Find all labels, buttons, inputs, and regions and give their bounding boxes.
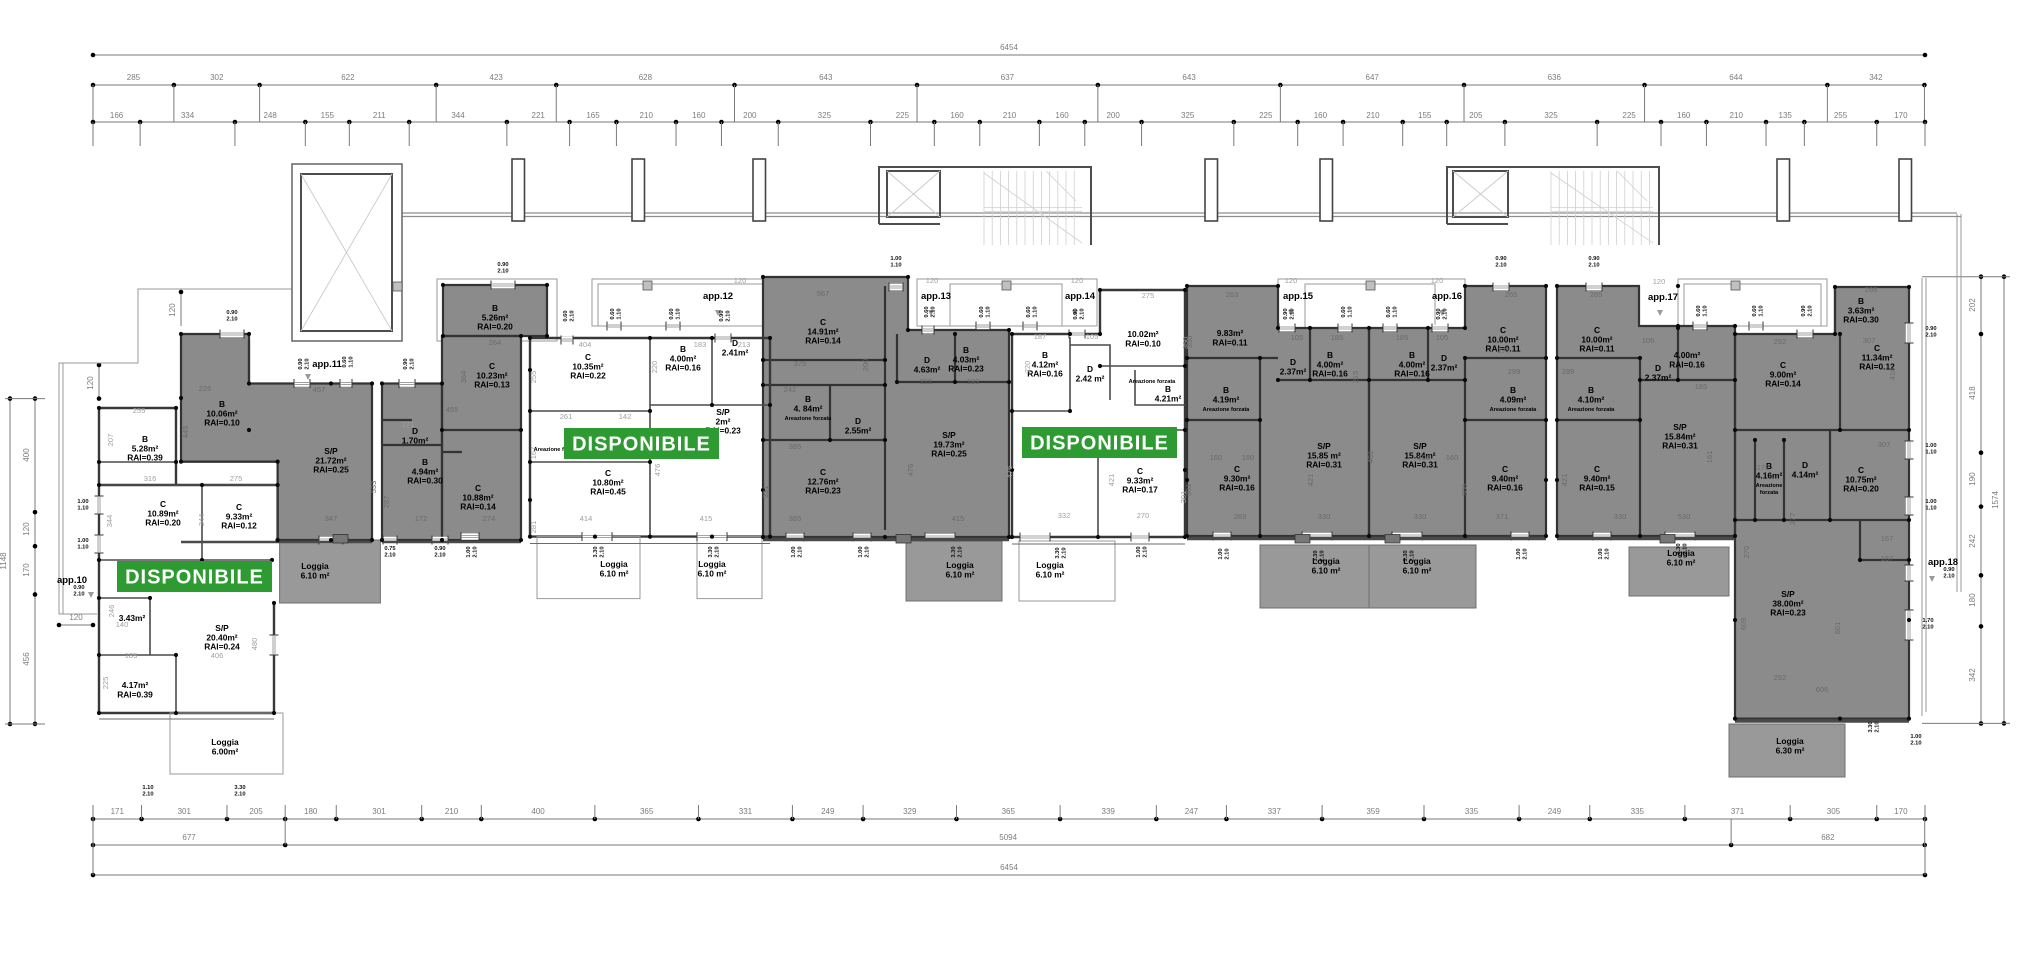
svg-text:2.10: 2.10 bbox=[1319, 550, 1325, 561]
svg-text:2.10: 2.10 bbox=[1289, 308, 1295, 319]
svg-text:170: 170 bbox=[22, 563, 31, 577]
svg-text:0.90: 0.90 bbox=[1495, 256, 1506, 262]
svg-text:1.10: 1.10 bbox=[1392, 306, 1398, 317]
svg-text:0.90: 0.90 bbox=[298, 358, 304, 369]
svg-text:160: 160 bbox=[950, 111, 964, 120]
svg-text:371: 371 bbox=[1731, 807, 1745, 816]
svg-text:1.70m²: 1.70m² bbox=[402, 435, 429, 445]
svg-text:RAI=0.25: RAI=0.25 bbox=[931, 449, 967, 459]
svg-text:247: 247 bbox=[1185, 807, 1199, 816]
svg-text:2.10: 2.10 bbox=[1522, 548, 1528, 559]
svg-text:2.10: 2.10 bbox=[1142, 546, 1148, 557]
svg-text:220: 220 bbox=[650, 361, 659, 374]
svg-text:2.10: 2.10 bbox=[1874, 721, 1880, 732]
svg-text:606: 606 bbox=[1816, 685, 1829, 694]
svg-text:RAI=0.45: RAI=0.45 bbox=[590, 487, 626, 497]
svg-text:210: 210 bbox=[1730, 111, 1744, 120]
svg-text:RAI=0.16: RAI=0.16 bbox=[1312, 369, 1348, 379]
svg-text:2.42 m²: 2.42 m² bbox=[1076, 373, 1105, 383]
svg-text:2.10: 2.10 bbox=[1682, 543, 1688, 554]
svg-text:248: 248 bbox=[263, 111, 277, 120]
svg-text:0.60: 0.60 bbox=[1026, 306, 1032, 317]
svg-text:207: 207 bbox=[106, 434, 115, 447]
svg-text:210: 210 bbox=[640, 111, 654, 120]
svg-text:225: 225 bbox=[1622, 111, 1636, 120]
svg-text:app.11: app.11 bbox=[312, 359, 342, 370]
svg-text:2.10: 2.10 bbox=[226, 316, 237, 322]
svg-text:6.00m²: 6.00m² bbox=[212, 746, 239, 756]
svg-text:0.60: 0.60 bbox=[669, 308, 675, 319]
svg-text:476: 476 bbox=[1005, 466, 1014, 479]
svg-text:0.60: 0.60 bbox=[1341, 306, 1347, 317]
svg-text:RAI=0.11: RAI=0.11 bbox=[1579, 344, 1614, 354]
svg-text:180: 180 bbox=[304, 807, 318, 816]
svg-text:4.09m²: 4.09m² bbox=[1500, 394, 1527, 404]
svg-text:app.12: app.12 bbox=[703, 291, 733, 302]
svg-text:170: 170 bbox=[1894, 111, 1908, 120]
svg-text:1.00: 1.00 bbox=[466, 546, 472, 557]
svg-text:202: 202 bbox=[1968, 298, 1977, 312]
svg-text:643: 643 bbox=[1182, 73, 1196, 82]
svg-text:166: 166 bbox=[110, 111, 124, 120]
svg-text:RAI=0.23: RAI=0.23 bbox=[948, 364, 984, 374]
svg-text:105: 105 bbox=[1436, 333, 1449, 342]
svg-text:3.30: 3.30 bbox=[951, 546, 957, 557]
svg-text:2.10: 2.10 bbox=[234, 791, 245, 797]
svg-text:334: 334 bbox=[181, 111, 195, 120]
svg-text:287: 287 bbox=[382, 496, 391, 509]
svg-text:2.10: 2.10 bbox=[1925, 332, 1936, 338]
svg-text:292: 292 bbox=[1774, 673, 1787, 682]
svg-text:415: 415 bbox=[700, 514, 713, 523]
svg-text:292: 292 bbox=[1774, 337, 1787, 346]
svg-text:530: 530 bbox=[1678, 512, 1691, 521]
svg-text:RAI=0.39: RAI=0.39 bbox=[127, 453, 163, 463]
svg-text:0.90: 0.90 bbox=[497, 262, 508, 268]
svg-text:200: 200 bbox=[861, 359, 870, 372]
svg-text:6.30 m²: 6.30 m² bbox=[1776, 745, 1805, 755]
svg-text:3.30: 3.30 bbox=[1403, 550, 1409, 561]
svg-text:app.13: app.13 bbox=[921, 291, 951, 302]
svg-text:1.10: 1.10 bbox=[890, 262, 901, 268]
svg-text:185: 185 bbox=[1695, 382, 1708, 391]
svg-text:120: 120 bbox=[734, 276, 747, 285]
svg-text:RAI=0.14: RAI=0.14 bbox=[1765, 379, 1801, 389]
svg-text:2.10: 2.10 bbox=[434, 552, 445, 558]
svg-text:0.60: 0.60 bbox=[342, 356, 348, 367]
svg-text:RAI=0.14: RAI=0.14 bbox=[805, 336, 841, 346]
svg-text:1.10: 1.10 bbox=[1032, 306, 1038, 317]
svg-text:Areazione: Areazione bbox=[1756, 483, 1783, 489]
svg-text:2.10: 2.10 bbox=[1943, 573, 1954, 579]
svg-text:172: 172 bbox=[1757, 463, 1770, 472]
svg-text:0.90: 0.90 bbox=[1925, 326, 1936, 332]
svg-text:RAI=0.22: RAI=0.22 bbox=[570, 371, 606, 381]
svg-text:414: 414 bbox=[580, 514, 593, 523]
svg-text:RAI=0.31: RAI=0.31 bbox=[1306, 460, 1342, 470]
svg-text:6.10 m²: 6.10 m² bbox=[600, 568, 629, 578]
svg-text:Areazione forzata: Areazione forzata bbox=[1568, 407, 1616, 413]
svg-text:1.00: 1.00 bbox=[1598, 548, 1604, 559]
svg-text:281: 281 bbox=[529, 521, 538, 534]
svg-text:2.37m²: 2.37m² bbox=[1645, 372, 1672, 382]
svg-text:0.90: 0.90 bbox=[403, 358, 409, 369]
svg-text:1.10: 1.10 bbox=[142, 785, 153, 791]
svg-text:365: 365 bbox=[1002, 807, 1016, 816]
svg-text:2.10: 2.10 bbox=[1061, 547, 1067, 558]
svg-text:377: 377 bbox=[1788, 513, 1797, 526]
svg-text:332: 332 bbox=[1058, 511, 1071, 520]
svg-text:481: 481 bbox=[1366, 451, 1375, 464]
svg-text:249: 249 bbox=[821, 807, 835, 816]
svg-text:app.14: app.14 bbox=[1065, 291, 1096, 302]
svg-text:242: 242 bbox=[1968, 534, 1977, 548]
svg-text:Areazione forzata: Areazione forzata bbox=[785, 416, 833, 422]
svg-text:344: 344 bbox=[197, 514, 206, 527]
svg-text:165: 165 bbox=[586, 111, 600, 120]
svg-text:2.10: 2.10 bbox=[1604, 548, 1610, 559]
svg-text:3.30: 3.30 bbox=[1055, 547, 1061, 558]
svg-text:2.10: 2.10 bbox=[599, 546, 605, 557]
svg-text:3.30: 3.30 bbox=[1313, 550, 1319, 561]
svg-text:0.90: 0.90 bbox=[226, 310, 237, 316]
svg-text:220: 220 bbox=[1023, 361, 1032, 374]
svg-text:RAI=0.16: RAI=0.16 bbox=[1394, 369, 1430, 379]
svg-text:app.17: app.17 bbox=[1648, 292, 1678, 303]
svg-text:330: 330 bbox=[1318, 512, 1331, 521]
svg-text:6.10 m²: 6.10 m² bbox=[1403, 565, 1432, 575]
svg-text:307: 307 bbox=[1863, 336, 1876, 345]
svg-text:6.10 m²: 6.10 m² bbox=[1667, 557, 1696, 567]
svg-text:5094: 5094 bbox=[999, 833, 1017, 842]
svg-text:421: 421 bbox=[1107, 474, 1116, 487]
svg-text:2.10: 2.10 bbox=[497, 268, 508, 274]
svg-text:DISPONIBILE: DISPONIBILE bbox=[125, 567, 264, 589]
svg-text:270: 270 bbox=[1742, 546, 1751, 559]
svg-text:306: 306 bbox=[1460, 484, 1469, 497]
svg-text:RAI=0.16: RAI=0.16 bbox=[1027, 369, 1063, 379]
svg-text:364: 364 bbox=[459, 371, 468, 384]
svg-text:637: 637 bbox=[1001, 73, 1015, 82]
svg-text:1574: 1574 bbox=[1991, 491, 2000, 509]
svg-text:265: 265 bbox=[1590, 290, 1603, 299]
svg-text:325: 325 bbox=[818, 111, 832, 120]
svg-text:RAI=0.16: RAI=0.16 bbox=[1487, 483, 1523, 493]
svg-text:RAI=0.12: RAI=0.12 bbox=[221, 521, 257, 531]
svg-text:2.10: 2.10 bbox=[1442, 308, 1448, 319]
svg-text:423: 423 bbox=[490, 73, 504, 82]
svg-text:forzata: forzata bbox=[1760, 490, 1779, 496]
svg-text:682: 682 bbox=[1821, 833, 1835, 842]
svg-text:183: 183 bbox=[967, 377, 980, 386]
svg-text:1.10: 1.10 bbox=[348, 356, 354, 367]
svg-text:1.00: 1.00 bbox=[1925, 443, 1936, 449]
svg-text:155: 155 bbox=[1418, 111, 1432, 120]
svg-text:622: 622 bbox=[341, 73, 355, 82]
svg-text:RAI=0.23: RAI=0.23 bbox=[1770, 608, 1806, 618]
svg-text:4.63m²: 4.63m² bbox=[914, 364, 941, 374]
svg-text:171: 171 bbox=[111, 807, 125, 816]
svg-text:RAI=0.11: RAI=0.11 bbox=[1212, 337, 1247, 347]
svg-text:275: 275 bbox=[230, 474, 243, 483]
svg-text:344: 344 bbox=[451, 111, 465, 120]
svg-text:120: 120 bbox=[926, 276, 939, 285]
svg-text:100: 100 bbox=[1418, 453, 1431, 462]
svg-text:RAI=0.20: RAI=0.20 bbox=[145, 518, 181, 528]
svg-text:400: 400 bbox=[22, 448, 31, 462]
svg-text:2.10: 2.10 bbox=[472, 546, 478, 557]
svg-text:342: 342 bbox=[1968, 668, 1977, 682]
svg-text:200: 200 bbox=[1106, 111, 1120, 120]
svg-text:350: 350 bbox=[1185, 336, 1194, 349]
svg-text:1.10: 1.10 bbox=[985, 306, 991, 317]
svg-text:213: 213 bbox=[738, 340, 751, 349]
svg-text:2.10: 2.10 bbox=[1807, 305, 1813, 316]
svg-text:2.10: 2.10 bbox=[714, 546, 720, 557]
svg-text:4.19m²: 4.19m² bbox=[1213, 394, 1240, 404]
svg-text:0.90: 0.90 bbox=[1801, 305, 1807, 316]
svg-text:RAI=0.10: RAI=0.10 bbox=[1125, 338, 1161, 348]
svg-text:1.00: 1.00 bbox=[1910, 734, 1921, 740]
svg-text:6.10 m²: 6.10 m² bbox=[698, 568, 727, 578]
svg-text:2.10: 2.10 bbox=[1409, 550, 1415, 561]
svg-text:205: 205 bbox=[249, 807, 263, 816]
svg-text:105: 105 bbox=[1291, 333, 1304, 342]
svg-text:2.10: 2.10 bbox=[142, 791, 153, 797]
svg-text:365: 365 bbox=[640, 807, 654, 816]
svg-text:RAI=0.10: RAI=0.10 bbox=[204, 418, 240, 428]
svg-text:0.90: 0.90 bbox=[719, 310, 725, 321]
svg-text:0.60: 0.60 bbox=[1752, 305, 1758, 316]
svg-text:190: 190 bbox=[1968, 472, 1977, 486]
svg-text:299: 299 bbox=[1508, 367, 1521, 376]
svg-text:2.10: 2.10 bbox=[930, 306, 936, 317]
svg-text:677: 677 bbox=[182, 833, 196, 842]
svg-text:1.00: 1.00 bbox=[791, 546, 797, 557]
svg-text:6454: 6454 bbox=[1000, 43, 1018, 52]
svg-text:RAI=0.20: RAI=0.20 bbox=[477, 322, 513, 332]
svg-text:455: 455 bbox=[446, 405, 459, 414]
svg-text:167: 167 bbox=[529, 447, 538, 460]
svg-text:120: 120 bbox=[1285, 276, 1298, 285]
svg-text:643: 643 bbox=[819, 73, 833, 82]
svg-text:215: 215 bbox=[1351, 371, 1360, 384]
svg-text:421: 421 bbox=[1560, 474, 1569, 487]
svg-text:105: 105 bbox=[1086, 332, 1099, 341]
svg-text:274: 274 bbox=[483, 514, 496, 523]
svg-text:1.10: 1.10 bbox=[1347, 306, 1353, 317]
svg-text:RAI=0.25: RAI=0.25 bbox=[313, 465, 349, 475]
svg-text:RAI=0.16: RAI=0.16 bbox=[1669, 359, 1705, 369]
svg-text:185: 185 bbox=[1331, 333, 1344, 342]
svg-text:335: 335 bbox=[1631, 807, 1645, 816]
svg-text:0.60: 0.60 bbox=[563, 310, 569, 321]
svg-text:135: 135 bbox=[1779, 111, 1793, 120]
svg-text:0.60: 0.60 bbox=[1696, 305, 1702, 316]
svg-text:210: 210 bbox=[1003, 111, 1017, 120]
svg-text:172: 172 bbox=[415, 514, 428, 523]
svg-text:647: 647 bbox=[1366, 73, 1380, 82]
svg-text:249: 249 bbox=[1548, 807, 1562, 816]
svg-text:2.10: 2.10 bbox=[384, 552, 395, 558]
svg-text:180: 180 bbox=[1968, 593, 1977, 607]
svg-text:185: 185 bbox=[1396, 333, 1409, 342]
svg-text:0.90: 0.90 bbox=[73, 585, 84, 591]
svg-text:0.60: 0.60 bbox=[924, 306, 930, 317]
svg-text:RAI=0.13: RAI=0.13 bbox=[474, 380, 510, 390]
svg-text:6454: 6454 bbox=[1000, 863, 1018, 872]
svg-text:Areazione forzata: Areazione forzata bbox=[1490, 407, 1538, 413]
svg-text:0.90: 0.90 bbox=[1588, 256, 1599, 262]
svg-text:410: 410 bbox=[1888, 368, 1897, 381]
svg-text:1.10: 1.10 bbox=[1925, 505, 1936, 511]
svg-text:3.30: 3.30 bbox=[708, 546, 714, 557]
svg-text:0.60: 0.60 bbox=[1386, 306, 1392, 317]
svg-text:3.30: 3.30 bbox=[593, 546, 599, 557]
svg-text:2.10: 2.10 bbox=[797, 546, 803, 557]
svg-text:533: 533 bbox=[369, 481, 378, 494]
svg-text:1148: 1148 bbox=[0, 552, 8, 570]
svg-text:2.10: 2.10 bbox=[73, 591, 84, 597]
svg-text:RAI=0.15: RAI=0.15 bbox=[1579, 483, 1615, 493]
svg-text:161: 161 bbox=[1705, 451, 1714, 464]
svg-text:325: 325 bbox=[1544, 111, 1558, 120]
svg-text:301: 301 bbox=[372, 807, 386, 816]
svg-text:155: 155 bbox=[321, 111, 335, 120]
svg-text:445: 445 bbox=[181, 426, 190, 439]
svg-text:6.10 m²: 6.10 m² bbox=[946, 569, 975, 579]
svg-text:120: 120 bbox=[1653, 277, 1666, 286]
svg-text:359: 359 bbox=[1366, 807, 1380, 816]
svg-text:DISPONIBILE: DISPONIBILE bbox=[572, 434, 711, 456]
svg-text:2.10: 2.10 bbox=[409, 358, 415, 369]
svg-text:221: 221 bbox=[532, 111, 546, 120]
svg-text:421: 421 bbox=[1306, 474, 1315, 487]
svg-text:212: 212 bbox=[920, 377, 933, 386]
svg-text:160: 160 bbox=[1446, 453, 1459, 462]
svg-text:476: 476 bbox=[906, 464, 915, 477]
svg-text:339: 339 bbox=[1102, 807, 1116, 816]
svg-text:2.10: 2.10 bbox=[1922, 624, 1933, 630]
svg-text:RAI=0.20: RAI=0.20 bbox=[1843, 484, 1879, 494]
svg-text:476: 476 bbox=[653, 464, 662, 477]
svg-text:331: 331 bbox=[761, 486, 770, 499]
svg-text:185: 185 bbox=[125, 651, 138, 660]
svg-text:225: 225 bbox=[1259, 111, 1273, 120]
svg-text:180: 180 bbox=[1242, 453, 1255, 462]
svg-text:160: 160 bbox=[1314, 111, 1328, 120]
svg-text:4. 84m²: 4. 84m² bbox=[794, 403, 823, 413]
svg-text:1.00: 1.00 bbox=[1218, 548, 1224, 559]
svg-text:1.00: 1.00 bbox=[858, 546, 864, 557]
svg-text:329: 329 bbox=[903, 807, 917, 816]
svg-text:171: 171 bbox=[402, 420, 415, 429]
svg-text:140: 140 bbox=[116, 620, 129, 629]
svg-text:2.10: 2.10 bbox=[1588, 262, 1599, 268]
svg-text:1.10: 1.10 bbox=[1925, 449, 1936, 455]
svg-text:RAI=0.30: RAI=0.30 bbox=[407, 476, 443, 486]
svg-text:160: 160 bbox=[1055, 111, 1069, 120]
svg-text:2.10: 2.10 bbox=[1079, 308, 1085, 319]
svg-text:200: 200 bbox=[743, 111, 757, 120]
svg-text:1.00: 1.00 bbox=[77, 538, 88, 544]
svg-text:225: 225 bbox=[896, 111, 910, 120]
svg-text:2.55m²: 2.55m² bbox=[845, 425, 872, 435]
svg-text:342: 342 bbox=[1869, 73, 1883, 82]
svg-text:1.10: 1.10 bbox=[1758, 305, 1764, 316]
svg-text:RAI=0.23: RAI=0.23 bbox=[805, 486, 841, 496]
svg-text:6.10 m²: 6.10 m² bbox=[1036, 569, 1065, 579]
svg-text:1.10: 1.10 bbox=[77, 544, 88, 550]
svg-text:265: 265 bbox=[1505, 290, 1518, 299]
svg-text:302: 302 bbox=[210, 73, 224, 82]
svg-text:105: 105 bbox=[1642, 336, 1655, 345]
svg-text:335: 335 bbox=[1465, 807, 1479, 816]
svg-text:255: 255 bbox=[529, 371, 538, 384]
svg-text:331: 331 bbox=[739, 807, 753, 816]
svg-text:1.00: 1.00 bbox=[890, 256, 901, 262]
svg-text:210: 210 bbox=[445, 807, 459, 816]
svg-text:644: 644 bbox=[1729, 73, 1743, 82]
svg-text:211: 211 bbox=[373, 111, 386, 120]
svg-text:456: 456 bbox=[22, 652, 31, 666]
svg-text:2.10: 2.10 bbox=[569, 310, 575, 321]
svg-text:RAI=0.17: RAI=0.17 bbox=[1122, 485, 1158, 495]
svg-text:2.10: 2.10 bbox=[1224, 548, 1230, 559]
svg-text:4.14m²: 4.14m² bbox=[1792, 469, 1819, 479]
svg-text:316: 316 bbox=[144, 474, 157, 483]
svg-text:120: 120 bbox=[86, 376, 95, 390]
svg-text:347: 347 bbox=[325, 514, 338, 523]
svg-text:170: 170 bbox=[1894, 807, 1908, 816]
svg-text:142: 142 bbox=[619, 412, 632, 421]
svg-text:246: 246 bbox=[107, 605, 116, 618]
svg-text:0.90: 0.90 bbox=[1283, 308, 1289, 319]
svg-text:120: 120 bbox=[22, 522, 31, 536]
svg-text:RAI=0.16: RAI=0.16 bbox=[665, 363, 701, 373]
svg-text:301: 301 bbox=[1184, 484, 1193, 497]
svg-text:1.10: 1.10 bbox=[1702, 305, 1708, 316]
svg-text:2.10: 2.10 bbox=[725, 310, 731, 321]
svg-text:601: 601 bbox=[1833, 622, 1842, 635]
svg-text:567: 567 bbox=[817, 289, 830, 298]
svg-text:242: 242 bbox=[784, 385, 797, 394]
svg-text:269: 269 bbox=[1234, 512, 1247, 521]
svg-text:330: 330 bbox=[1414, 512, 1427, 521]
svg-text:255: 255 bbox=[1834, 111, 1848, 120]
svg-text:167: 167 bbox=[1881, 534, 1894, 543]
svg-text:1.10: 1.10 bbox=[77, 505, 88, 511]
svg-text:406: 406 bbox=[211, 651, 224, 660]
svg-text:371: 371 bbox=[1496, 512, 1509, 521]
svg-text:255: 255 bbox=[133, 406, 146, 415]
svg-text:RAI=0.16: RAI=0.16 bbox=[1219, 483, 1255, 493]
svg-text:0.90: 0.90 bbox=[434, 546, 445, 552]
svg-text:6.10 m²: 6.10 m² bbox=[1312, 565, 1341, 575]
svg-text:277: 277 bbox=[1498, 346, 1511, 355]
svg-text:2.37m²: 2.37m² bbox=[1431, 362, 1458, 372]
svg-text:1.10: 1.10 bbox=[616, 308, 622, 319]
svg-text:305: 305 bbox=[1827, 807, 1841, 816]
svg-text:3.30: 3.30 bbox=[1676, 543, 1682, 554]
svg-text:1.70: 1.70 bbox=[1922, 618, 1933, 624]
svg-text:480: 480 bbox=[250, 638, 259, 651]
svg-text:120: 120 bbox=[168, 303, 177, 317]
svg-text:2.10: 2.10 bbox=[304, 358, 310, 369]
svg-text:270: 270 bbox=[1137, 511, 1150, 520]
svg-text:6.10 m²: 6.10 m² bbox=[301, 570, 330, 580]
svg-text:400: 400 bbox=[531, 807, 545, 816]
